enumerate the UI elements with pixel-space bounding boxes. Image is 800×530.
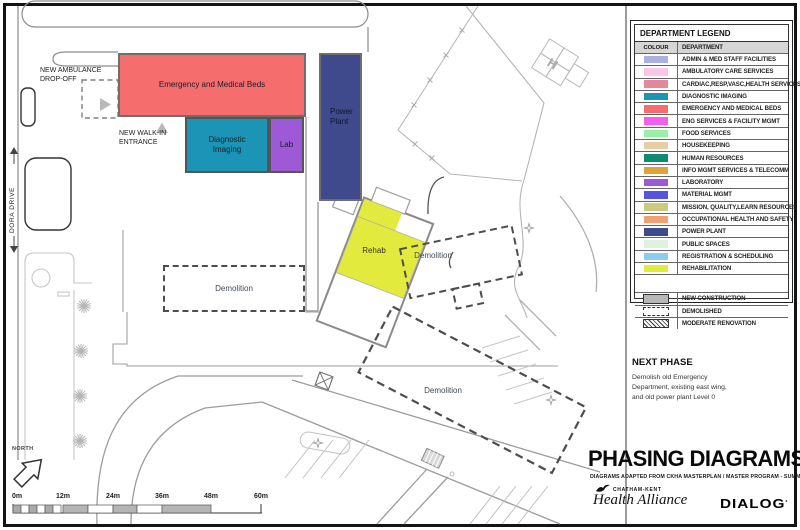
- legend-row: OCCUPATIONAL HEALTH AND SAFETY: [635, 213, 788, 225]
- street-label-dora-drive: DORA DRIVE: [9, 187, 16, 233]
- legend-department-label: CARDIAC,RESP,VASC,HEALTH SERVICES: [678, 79, 800, 90]
- survey-marker-icon: [314, 439, 323, 448]
- demolished-swatch: [643, 307, 669, 317]
- dialog-wordmark: DIALOG: [720, 496, 785, 511]
- building-label: Emergency and Medical Beds: [159, 80, 265, 90]
- legend-table: DEPARTMENT LEGEND COLOUR DEPARTMENT ADMI…: [634, 24, 789, 299]
- legend-department-label: EMERGENCY AND MEDICAL BEDS: [678, 103, 788, 114]
- scale-label: 12m: [50, 493, 76, 500]
- sheet-subtitle: DIAGRAMS ADAPTED FROM CKHA MASTERPLAN / …: [590, 474, 800, 480]
- site-marker: [450, 472, 454, 476]
- entry-arrow-right-icon: [100, 98, 111, 111]
- legend-department-label: AMBULATORY CARE SERVICES: [678, 66, 788, 77]
- legend-title: DEPARTMENT LEGEND: [635, 25, 788, 41]
- legend-swatch: [644, 130, 668, 138]
- legend-swatch: [644, 216, 668, 224]
- legend-row: REGISTRATION & SCHEDULING: [635, 250, 788, 262]
- legend-construction-label: NEW CONSTRUCTION: [678, 293, 788, 304]
- legend-swatch: [644, 117, 668, 125]
- parking-islands: [21, 88, 71, 230]
- tree-icon: [77, 299, 91, 313]
- legend-swatch: [644, 240, 668, 248]
- scale-label: 24m: [100, 493, 126, 500]
- legend-department-label: FOOD SERVICES: [678, 128, 788, 139]
- demolition-zone-west: Demolition: [163, 265, 305, 312]
- legend-department-label: ENG SERVICES & FACILITY MGMT: [678, 115, 788, 126]
- legend-row: HOUSEKEEPING: [635, 139, 788, 151]
- legend-row-new-construction: NEW CONSTRUCTION: [635, 292, 788, 304]
- legend-department-label: MATERIAL MGMT: [678, 189, 788, 200]
- legend-swatch: [644, 203, 668, 211]
- north-label: NORTH: [12, 446, 34, 452]
- building-emergency-medical-beds: Emergency and Medical Beds: [118, 53, 306, 117]
- survey-marker-icon: [525, 224, 534, 233]
- legend-swatch: [644, 154, 668, 162]
- building-lab: Lab: [269, 117, 304, 173]
- legend-row: CARDIAC,RESP,VASC,HEALTH SERVICES: [635, 78, 788, 90]
- ckha-logo: CHATHAM-KENT Health Alliance: [593, 487, 687, 509]
- scale-label: 0m: [4, 493, 30, 500]
- scale-bar: [13, 504, 262, 513]
- legend-construction-label: DEMOLISHED: [678, 306, 788, 317]
- legend-colour-header: COLOUR: [635, 42, 678, 53]
- legend-swatch: [644, 142, 668, 150]
- building-label: Diagnostic Imaging: [208, 135, 245, 155]
- legend-department-label: MISSION, QUALITY,LEARN RESOURCES: [678, 202, 797, 213]
- dialog-logo: DIALOG▪: [720, 496, 788, 511]
- legend-swatch: [644, 228, 668, 236]
- legend-swatch: [644, 179, 668, 187]
- tree-icon: [73, 389, 87, 403]
- next-phase-heading: NEXT PHASE: [632, 357, 693, 368]
- legend-row: EMERGENCY AND MEDICAL BEDS: [635, 102, 788, 114]
- oval-island: [299, 431, 351, 455]
- survey-marker-icon: [547, 396, 556, 405]
- legend-department-label: ADMIN & MED STAFF FACILITIES: [678, 54, 788, 65]
- legend-swatch: [644, 167, 668, 175]
- ckha-bird-icon: [595, 483, 611, 495]
- north-arrow-icon: [10, 452, 49, 491]
- legend-row: INFO MGMT SERVICES & TELECOMM: [635, 164, 788, 176]
- legend-department-label: REHABILITATION: [678, 263, 788, 274]
- walk-in-entrance-label: NEW WALK-IN ENTRANCE: [119, 129, 166, 147]
- legend-department-label: OCCUPATIONAL HEALTH AND SAFETY: [678, 214, 793, 225]
- legend-department-label: HOUSEKEEPING: [678, 140, 788, 151]
- demolition-label-south: Demolition: [408, 386, 478, 395]
- building-diagnostic-imaging: Diagnostic Imaging: [185, 117, 269, 173]
- legend-row-demolished: DEMOLISHED: [635, 305, 788, 317]
- legend-row: HUMAN RESOURCES: [635, 151, 788, 163]
- fence-lines: [398, 6, 522, 181]
- legend-swatch: [644, 253, 668, 261]
- legend-spacer-row: [635, 274, 788, 292]
- legend-swatch: [644, 56, 668, 64]
- legend-row: POWER PLANT: [635, 225, 788, 237]
- legend-department-label: PUBLIC SPACES: [678, 238, 788, 249]
- ambulance-dropoff-label: NEW AMBULANCE DROP-OFF: [40, 66, 101, 84]
- legend-department-label: LABORATORY: [678, 177, 788, 188]
- rehab-building: [292, 175, 438, 347]
- curb-line: [428, 177, 444, 214]
- legend-row: REHABILITATION: [635, 262, 788, 274]
- legend-swatch: [644, 191, 668, 199]
- tree-icon: [74, 344, 88, 358]
- legend-swatch: [644, 265, 668, 273]
- legend-swatch: [644, 93, 668, 101]
- scale-label: 60m: [248, 493, 274, 500]
- legend-department-label: HUMAN RESOURCES: [678, 152, 788, 163]
- legend-swatch: [644, 105, 668, 113]
- upper-road-lines: [466, 6, 544, 318]
- legend-row: PUBLIC SPACES: [635, 237, 788, 249]
- building-label-rehab: Rehab: [350, 246, 398, 255]
- tree-icon: [73, 434, 87, 448]
- legend-row: DIAGNOSTIC IMAGING: [635, 90, 788, 102]
- legend-row: LABORATORY: [635, 176, 788, 188]
- demolition-label-east: Demolition: [398, 251, 468, 260]
- legend-department-label: DIAGNOSTIC IMAGING: [678, 91, 788, 102]
- building-power-plant: Power Plant: [319, 53, 362, 201]
- legend-department-label: POWER PLANT: [678, 226, 788, 237]
- legend-row: ADMIN & MED STAFF FACILITIES: [635, 53, 788, 65]
- legend-row-moderate-renovation: MODERATE RENOVATION: [635, 317, 788, 329]
- scale-label: 48m: [198, 493, 224, 500]
- legend-row: FOOD SERVICES: [635, 127, 788, 139]
- legend-construction-label: MODERATE RENOVATION: [678, 318, 788, 329]
- scale-label: 36m: [149, 493, 175, 500]
- phasing-diagram-sheet: H: [0, 0, 800, 530]
- crosswalk-hatch: [421, 448, 444, 468]
- legend-department-header: DEPARTMENT: [678, 42, 788, 53]
- legend-swatch: [644, 80, 668, 88]
- legend-row: ENG SERVICES & FACILITY MGMT: [635, 114, 788, 126]
- legend-row: AMBULATORY CARE SERVICES: [635, 65, 788, 77]
- legend-row: MATERIAL MGMT: [635, 188, 788, 200]
- legend-department-label: REGISTRATION & SCHEDULING: [678, 251, 788, 262]
- helipad-icon: H: [532, 39, 593, 95]
- legend-row: MISSION, QUALITY,LEARN RESOURCES: [635, 201, 788, 213]
- legend-header-row: COLOUR DEPARTMENT: [635, 41, 788, 53]
- new-construction-swatch: [643, 294, 669, 304]
- building-label: Power Plant: [330, 107, 353, 127]
- next-phase-body: Demolish old Emergency Department, exist…: [632, 373, 727, 403]
- landscape-lines: [25, 253, 92, 460]
- moderate-renovation-swatch: [643, 319, 669, 329]
- legend-department-label: INFO MGMT SERVICES & TELECOMM: [678, 165, 789, 176]
- parking-stripes-right: [482, 336, 552, 404]
- building-label: Lab: [280, 140, 293, 150]
- legend-swatch: [644, 68, 668, 76]
- demolition-label: Demolition: [215, 284, 253, 293]
- department-legend: DEPARTMENT LEGEND COLOUR DEPARTMENT ADMI…: [630, 20, 793, 303]
- sheet-title: PHASING DIAGRAMS: [588, 446, 800, 472]
